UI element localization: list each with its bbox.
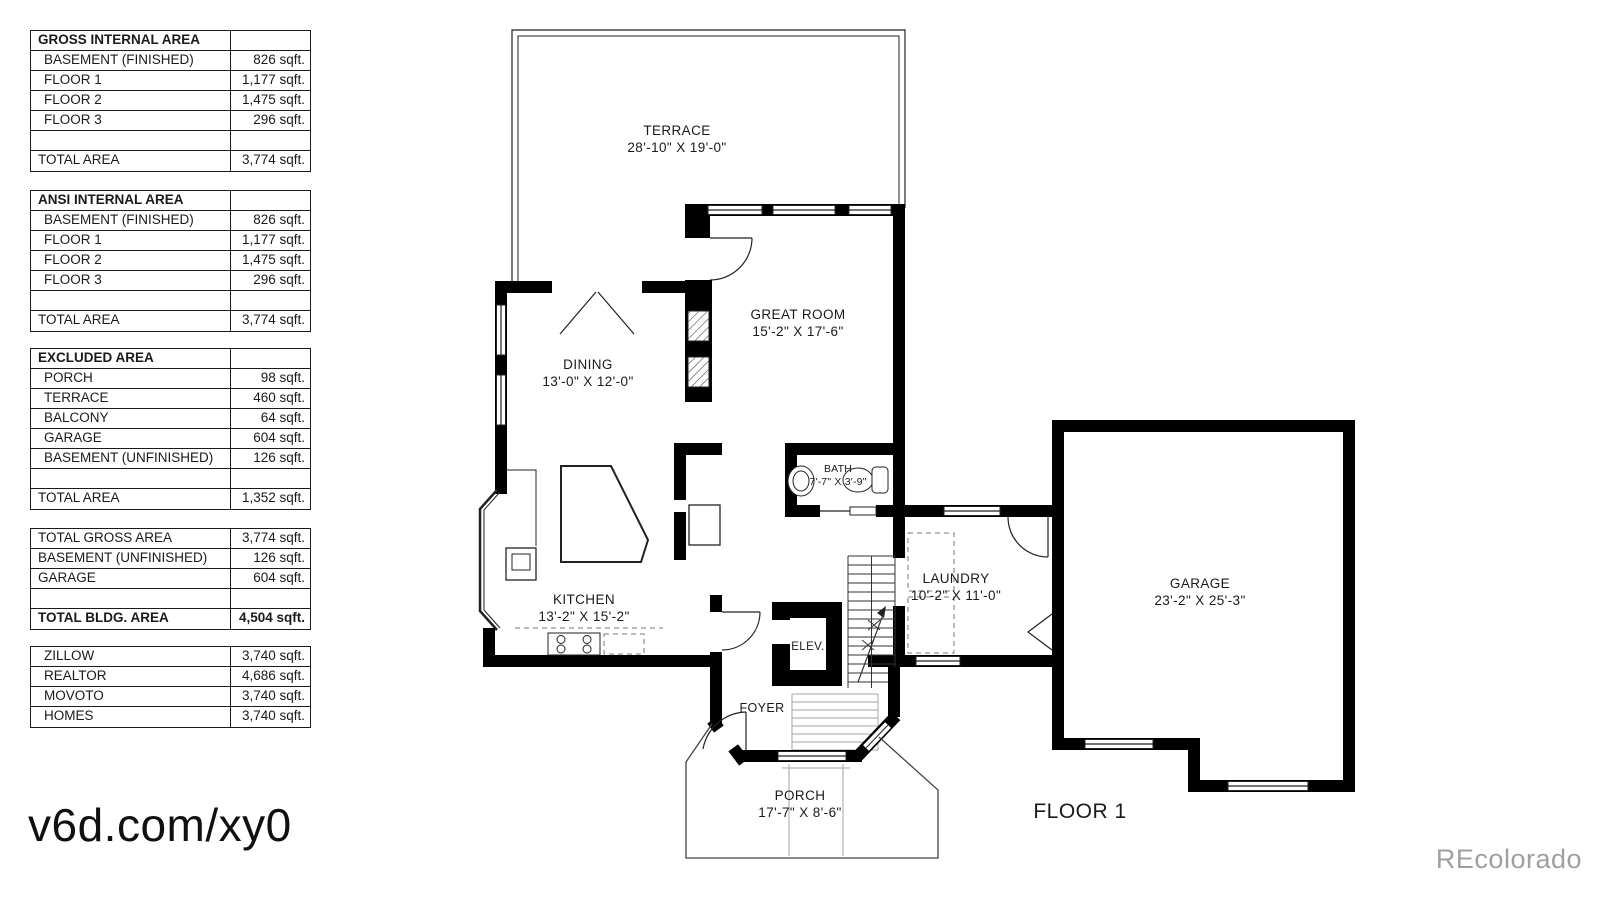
- room-dims: 7'-7" X 3'-9": [809, 476, 866, 489]
- row-value: 3,740 sqft.: [230, 647, 310, 666]
- row-label: FLOOR 2: [31, 91, 230, 110]
- table-total-row: TOTAL AREA 1,352 sqft.: [31, 489, 310, 509]
- garage-label: GARAGE 23'-2" X 25'-3": [1154, 575, 1245, 609]
- row-label: BASEMENT (FINISHED): [31, 211, 230, 230]
- row-label: FLOOR 1: [31, 71, 230, 90]
- room-name: TERRACE: [627, 122, 726, 139]
- row-value: 604 sqft.: [230, 569, 310, 588]
- row-value: 1,475 sqft.: [230, 91, 310, 110]
- table-total-row: TOTAL AREA 3,774 sqft.: [31, 311, 310, 331]
- row-value: 3,740 sqft.: [230, 687, 310, 706]
- room-dims: 15'-2" X 17'-6": [750, 323, 845, 340]
- table-row: FLOOR 1 1,177 sqft.: [31, 71, 310, 91]
- row-label: TOTAL GROSS AREA: [31, 529, 230, 548]
- table-spacer-row: [31, 291, 310, 311]
- kitchen-walls: [480, 443, 722, 667]
- room-name: KITCHEN: [538, 591, 629, 608]
- room-name: DINING: [542, 356, 633, 373]
- total-label: TOTAL AREA: [31, 489, 230, 509]
- row-value: 3,774 sqft.: [230, 529, 310, 548]
- row-value: 64 sqft.: [230, 409, 310, 428]
- room-name: GREAT ROOM: [750, 306, 845, 323]
- spacer-cell: [230, 131, 310, 150]
- table-total-row: TOTAL BLDG. AREA 4,504 sqft.: [31, 609, 310, 629]
- porch-label: PORCH 17'-7" X 8'-6": [758, 787, 841, 821]
- table-row: BASEMENT (FINISHED) 826 sqft.: [31, 51, 310, 71]
- row-value: 604 sqft.: [230, 429, 310, 448]
- floor-number-label: FLOOR 1: [1033, 800, 1126, 824]
- row-value: 98 sqft.: [230, 369, 310, 388]
- table-row: BASEMENT (UNFINISHED) 126 sqft.: [31, 549, 310, 569]
- room-name: FOYER: [739, 700, 784, 717]
- room-dims: 13'-0" X 12'-0": [542, 373, 633, 390]
- row-value: 126 sqft.: [230, 449, 310, 468]
- table-row: BASEMENT (UNFINISHED) 126 sqft.: [31, 449, 310, 469]
- excluded-area-table: EXCLUDED AREA PORCH 98 sqft. TERRACE 460…: [30, 348, 311, 510]
- table-title: ANSI INTERNAL AREA: [31, 191, 230, 210]
- row-value: 1,177 sqft.: [230, 71, 310, 90]
- row-value: 826 sqft.: [230, 51, 310, 70]
- kitchen-sink-icon: [506, 548, 536, 580]
- ansi-internal-area-table: ANSI INTERNAL AREA BASEMENT (FINISHED) 8…: [30, 190, 311, 332]
- spacer-cell: [31, 589, 230, 608]
- spacer-cell: [31, 131, 230, 150]
- row-label: FLOOR 1: [31, 231, 230, 250]
- table-title: EXCLUDED AREA: [31, 349, 230, 368]
- row-value: 826 sqft.: [230, 211, 310, 230]
- table-title-value: [230, 191, 310, 210]
- total-value: 1,352 sqft.: [230, 489, 310, 509]
- row-value: 126 sqft.: [230, 549, 310, 568]
- row-value: 460 sqft.: [230, 389, 310, 408]
- bath-label: BATH 7'-7" X 3'-9": [809, 463, 866, 489]
- row-value: 3,740 sqft.: [230, 707, 310, 727]
- spacer-cell: [31, 469, 230, 488]
- row-value: 296 sqft.: [230, 111, 310, 130]
- row-value: 1,475 sqft.: [230, 251, 310, 270]
- french-door-icon: [560, 292, 634, 334]
- gross-internal-area-table: GROSS INTERNAL AREA BASEMENT (FINISHED) …: [30, 30, 311, 172]
- room-name: ELEV.: [791, 639, 825, 656]
- row-label: GARAGE: [31, 569, 230, 588]
- row-label: PORCH: [31, 369, 230, 388]
- total-value: 3,774 sqft.: [230, 311, 310, 331]
- garage-door-icon: [1028, 614, 1052, 650]
- brand-watermark: REcolorado: [1436, 844, 1582, 875]
- table-title-value: [230, 349, 310, 368]
- room-dims: 23'-2" X 25'-3": [1154, 592, 1245, 609]
- table-row: FLOOR 3 296 sqft.: [31, 111, 310, 131]
- great-room-label: GREAT ROOM 15'-2" X 17'-6": [750, 306, 845, 340]
- row-value: 296 sqft.: [230, 271, 310, 290]
- total-label: TOTAL BLDG. AREA: [31, 609, 230, 629]
- table-row: GARAGE 604 sqft.: [31, 429, 310, 449]
- room-dims: 13'-2" X 15'-2": [538, 608, 629, 625]
- table-header-row: GROSS INTERNAL AREA: [31, 31, 310, 51]
- total-value: 4,504 sqft.: [230, 609, 310, 629]
- room-name: BATH: [809, 463, 866, 476]
- table-spacer-row: [31, 589, 310, 609]
- room-dims: 28'-10" X 19'-0": [627, 139, 726, 156]
- dining-label: DINING 13'-0" X 12'-0": [542, 356, 633, 390]
- kitchen-label: KITCHEN 13'-2" X 15'-2": [538, 591, 629, 625]
- table-row: PORCH 98 sqft.: [31, 369, 310, 389]
- providers-area-table: ZILLOW 3,740 sqft. REALTOR 4,686 sqft. M…: [30, 646, 311, 728]
- table-title-value: [230, 31, 310, 50]
- great-room-door-icon: [710, 238, 752, 280]
- spacer-cell: [230, 291, 310, 310]
- room-name: PORCH: [758, 787, 841, 804]
- table-row: FLOOR 3 296 sqft.: [31, 271, 310, 291]
- room-dims: 10'-2" X 11'-0": [911, 587, 1001, 604]
- laundry-door-icon: [1008, 517, 1048, 557]
- room-name: GARAGE: [1154, 575, 1245, 592]
- row-label: BASEMENT (UNFINISHED): [31, 549, 230, 568]
- total-label: TOTAL AREA: [31, 151, 230, 171]
- row-value: 1,177 sqft.: [230, 231, 310, 250]
- laundry-label: LAUNDRY 10'-2" X 11'-0": [911, 570, 1001, 604]
- row-label: BASEMENT (FINISHED): [31, 51, 230, 70]
- row-value: 4,686 sqft.: [230, 667, 310, 686]
- room-name: LAUNDRY: [911, 570, 1001, 587]
- table-spacer-row: [31, 131, 310, 151]
- row-label: GARAGE: [31, 429, 230, 448]
- table-row: TERRACE 460 sqft.: [31, 389, 310, 409]
- total-value: 3,774 sqft.: [230, 151, 310, 171]
- terrace-label: TERRACE 28'-10" X 19'-0": [627, 122, 726, 156]
- fridge-icon: [689, 505, 720, 545]
- foyer-label: FOYER: [739, 700, 784, 717]
- table-row: REALTOR 4,686 sqft.: [31, 667, 310, 687]
- table-row: TOTAL GROSS AREA 3,774 sqft.: [31, 529, 310, 549]
- room-dims: 17'-7" X 8'-6": [758, 804, 841, 821]
- kitchen-island-icon: [561, 466, 648, 562]
- table-spacer-row: [31, 469, 310, 489]
- row-label: BASEMENT (UNFINISHED): [31, 449, 230, 468]
- elevator-label: ELEV.: [791, 639, 825, 656]
- total-label: TOTAL AREA: [31, 311, 230, 331]
- row-label: REALTOR: [31, 667, 230, 686]
- row-label: BALCONY: [31, 409, 230, 428]
- table-row: FLOOR 2 1,475 sqft.: [31, 251, 310, 271]
- table-total-row: TOTAL AREA 3,774 sqft.: [31, 151, 310, 171]
- url-watermark: v6d.com/xy0: [28, 798, 292, 852]
- staircase-icon: [848, 556, 895, 688]
- row-label: FLOOR 2: [31, 251, 230, 270]
- total-gross-area-table: TOTAL GROSS AREA 3,774 sqft. BASEMENT (U…: [30, 528, 311, 630]
- spacer-cell: [230, 469, 310, 488]
- dryer-icon: [908, 597, 954, 653]
- row-label: FLOOR 3: [31, 271, 230, 290]
- terrace-outline: [512, 30, 905, 287]
- row-label: MOVOTO: [31, 687, 230, 706]
- spacer-cell: [230, 589, 310, 608]
- table-row: HOMES 3,740 sqft.: [31, 707, 310, 727]
- table-header-row: EXCLUDED AREA: [31, 349, 310, 369]
- spacer-cell: [31, 291, 230, 310]
- stove-icon: [548, 633, 600, 655]
- row-label: TERRACE: [31, 389, 230, 408]
- table-row: GARAGE 604 sqft.: [31, 569, 310, 589]
- foyer-kitchen-door-icon: [722, 612, 760, 650]
- table-row: MOVOTO 3,740 sqft.: [31, 687, 310, 707]
- row-label: FLOOR 3: [31, 111, 230, 130]
- table-row: FLOOR 2 1,475 sqft.: [31, 91, 310, 111]
- table-row: FLOOR 1 1,177 sqft.: [31, 231, 310, 251]
- table-header-row: ANSI INTERNAL AREA: [31, 191, 310, 211]
- table-row: BASEMENT (FINISHED) 826 sqft.: [31, 211, 310, 231]
- table-title: GROSS INTERNAL AREA: [31, 31, 230, 50]
- table-row: BALCONY 64 sqft.: [31, 409, 310, 429]
- row-label: HOMES: [31, 707, 230, 727]
- table-row: ZILLOW 3,740 sqft.: [31, 647, 310, 667]
- row-label: ZILLOW: [31, 647, 230, 666]
